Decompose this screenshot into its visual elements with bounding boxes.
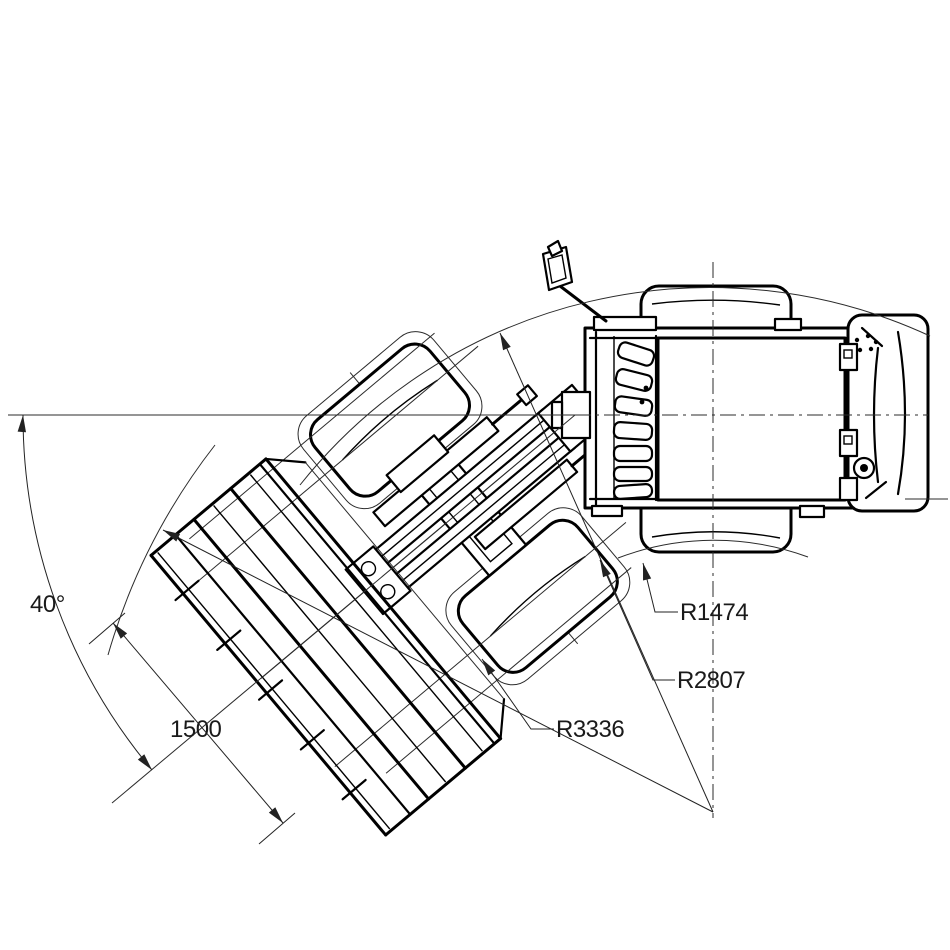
latch-bracket [840, 344, 857, 370]
hood-handle [775, 319, 801, 330]
counterweight-outline [848, 315, 928, 511]
vent-slot [613, 422, 652, 441]
r3336-label: R3336 [556, 716, 624, 743]
vent-slot [614, 446, 652, 461]
vent-slot [614, 484, 653, 500]
dim-1500-label: 1500 [170, 716, 222, 743]
bucket-side-plate [483, 699, 522, 738]
wheel-loader-turning-radius-drawing: 40° 1500 R1474 R2807 R3336 [0, 0, 950, 950]
fuel-cap-center [860, 464, 868, 472]
leader-arrowhead [639, 562, 651, 581]
technical-drawing-page: 40° 1500 R1474 R2807 R3336 [0, 0, 950, 950]
radius-ray-r3336 [163, 530, 713, 812]
angle-arrowhead [18, 415, 28, 433]
angle-label: 40° [30, 591, 65, 618]
counterweight [840, 315, 928, 511]
bucket-plate-line [231, 489, 466, 769]
r2807-label: R2807 [677, 667, 745, 694]
vent-slot [614, 467, 652, 481]
bucket-edge-line [158, 552, 390, 829]
frame-tab [800, 506, 824, 517]
bucket-end-plate [151, 459, 266, 555]
latch-bracket [840, 430, 857, 456]
tilt-cylinder-rod [493, 400, 522, 424]
engine-hood [658, 338, 845, 500]
arc-r3336 [108, 445, 215, 655]
mirror-assembly [543, 241, 606, 321]
angle-arrowhead [138, 754, 155, 772]
bucket-end-plate [386, 739, 501, 835]
r1474-label: R1474 [680, 599, 748, 626]
bucket-plate-line [194, 519, 429, 799]
panel-dot [640, 400, 645, 405]
dimension-40deg: 40° [18, 415, 156, 773]
ray-arrowhead [496, 331, 511, 350]
leader-r1474: R1474 [639, 562, 748, 626]
leader-line [643, 563, 678, 612]
frame-tab [592, 506, 622, 516]
panel-dot [644, 386, 649, 391]
latch-bracket [840, 478, 857, 500]
